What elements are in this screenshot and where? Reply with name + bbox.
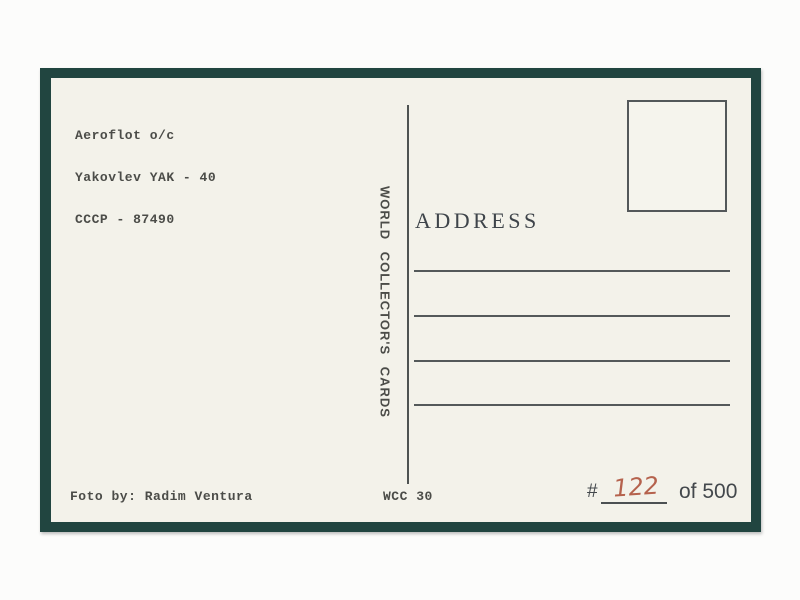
edition-total: of 500 (679, 480, 737, 504)
caption-line-aircraft: Aeroflot o/c (75, 129, 216, 143)
edition-number-handwritten: 122 (602, 471, 670, 504)
caption-line-type: Yakovlev YAK - 40 (75, 171, 216, 185)
caption-line-registration: CCCP - 87490 (75, 213, 216, 227)
edition-hash-symbol: # (587, 481, 598, 503)
edition-underline (601, 502, 667, 504)
postcard-frame: Aeroflot o/c Yakovlev YAK - 40 CCCP - 87… (40, 68, 761, 532)
address-line (414, 315, 730, 317)
divider-line (407, 105, 409, 484)
series-code: WCC 30 (383, 489, 433, 504)
photo-credit: Foto by: Radim Ventura (70, 489, 253, 504)
postcard-back: Aeroflot o/c Yakovlev YAK - 40 CCCP - 87… (51, 78, 751, 522)
caption-block: Aeroflot o/c Yakovlev YAK - 40 CCCP - 87… (75, 101, 216, 255)
stamp-box (627, 100, 727, 212)
publisher-vertical-text: WORLD COLLECTOR'S CARDS (378, 186, 393, 418)
scan-background: Aeroflot o/c Yakovlev YAK - 40 CCCP - 87… (0, 0, 800, 600)
address-line (414, 404, 730, 406)
address-line (414, 360, 730, 362)
address-line (414, 270, 730, 272)
address-label: ADDRESS (415, 208, 540, 234)
